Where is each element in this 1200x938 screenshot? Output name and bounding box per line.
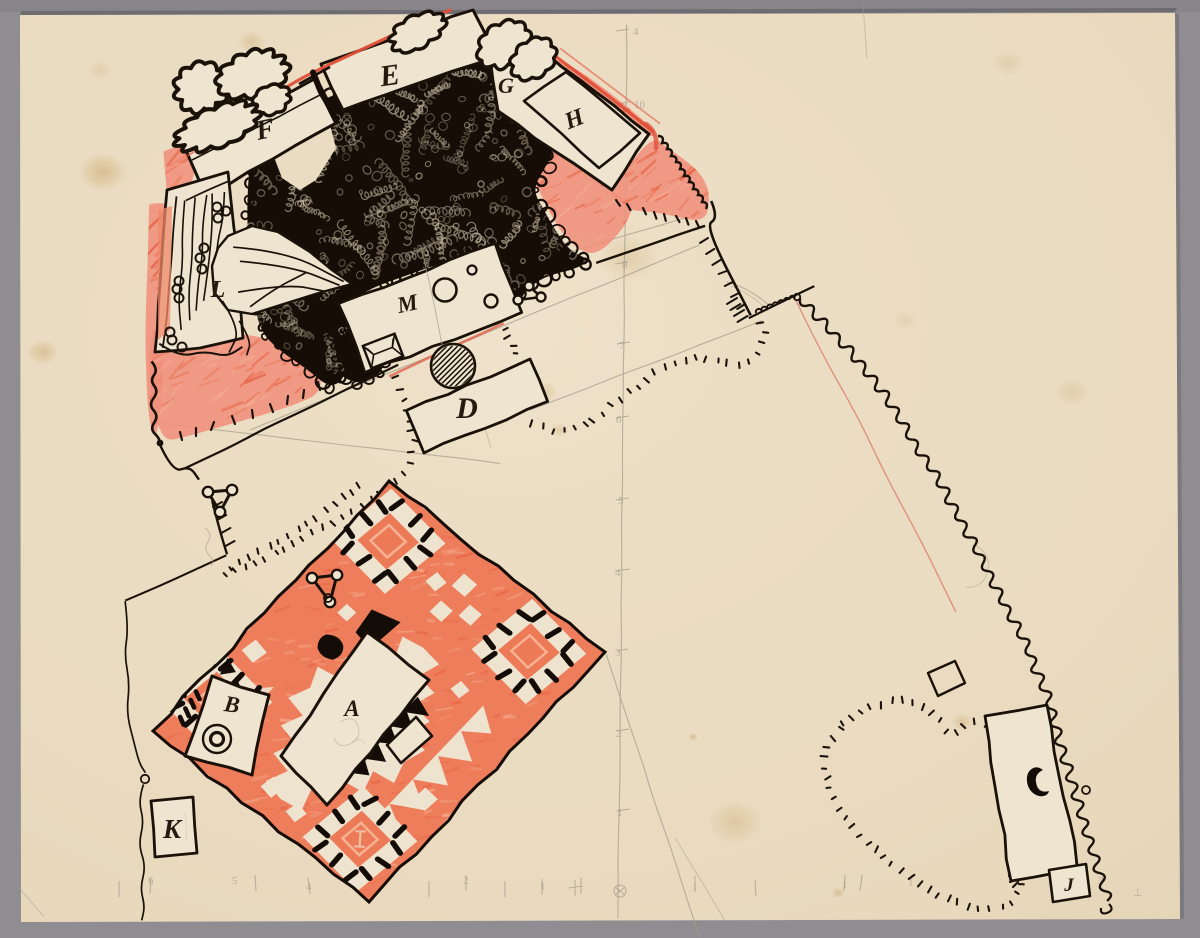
svg-text:⊥: ⊥ xyxy=(1133,887,1143,899)
svg-text:J: J xyxy=(1063,875,1074,896)
svg-text:5: 5 xyxy=(618,495,624,507)
svg-text:L: L xyxy=(210,277,226,303)
svg-text:B: B xyxy=(222,691,242,718)
svg-text:3: 3 xyxy=(615,647,621,659)
svg-text:4: 4 xyxy=(633,26,639,38)
svg-text:K: K xyxy=(162,814,183,844)
svg-text:D: D xyxy=(455,392,478,425)
svg-text:2: 2 xyxy=(616,728,622,740)
svg-text:7: 7 xyxy=(619,340,625,352)
svg-text:1: 1 xyxy=(617,807,623,819)
svg-text:G: G xyxy=(498,73,514,98)
svg-text:5: 5 xyxy=(232,875,238,887)
svg-text:1: 1 xyxy=(540,881,546,893)
svg-text:8: 8 xyxy=(622,259,628,271)
svg-text:4: 4 xyxy=(615,567,621,579)
svg-text:6: 6 xyxy=(616,414,622,426)
svg-text:A: A xyxy=(342,696,359,721)
